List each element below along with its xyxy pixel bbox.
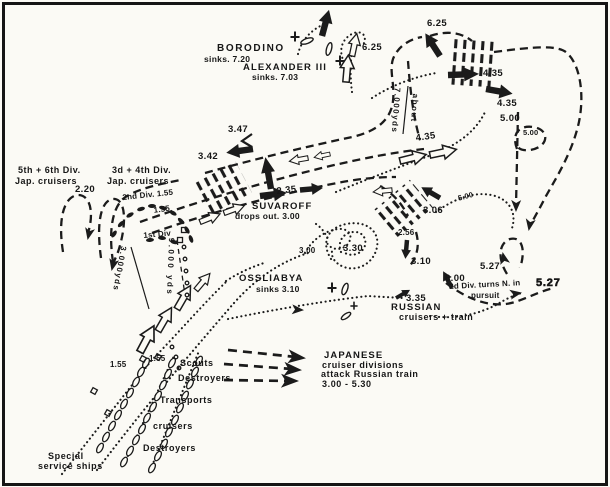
time-3-10: 3.10	[411, 256, 431, 267]
label-ossliabya-note: sinks 3.10	[256, 284, 300, 294]
label-ossliabya-name: OSSLIABYA	[239, 273, 303, 284]
label-div56-line1: 5th + 6th Div.	[18, 165, 81, 175]
label-special-line1: Special	[48, 451, 84, 461]
label-destroyers-upper: Destroyers	[178, 373, 231, 383]
label-transports: Transports	[160, 395, 213, 405]
label-russian-line2: cruisers + train	[399, 312, 473, 322]
time-1-55-col2: 1.55	[149, 354, 165, 363]
time-5-00-a: 5.00	[500, 113, 520, 124]
time-6-25-east: 6.25	[427, 18, 447, 29]
time-6-00: 6.00	[445, 273, 465, 284]
time-3-35: 3.35	[406, 293, 426, 304]
label-div56-line2: Jap. cruisers	[15, 176, 77, 186]
time-4-35-a: 4.35	[483, 68, 503, 79]
time-5-00-loop: 5.00	[523, 128, 538, 137]
time-3-47: 3.47	[228, 124, 248, 135]
label-suvaroff-note: drops out. 3.00	[235, 211, 300, 221]
label-alexander-note: sinks. 7.03	[252, 72, 298, 82]
time-3-00: 3.00	[299, 246, 315, 255]
label-scouts: Scouts	[180, 358, 214, 368]
label-attack-line4: 3.00 - 5.30	[322, 379, 372, 389]
time-4-35-b: 4.35	[497, 98, 517, 109]
time-1-55-col1: 1.55	[110, 360, 126, 369]
time-2-56: 2.56	[398, 228, 414, 237]
label-special-line2: service ships	[38, 461, 103, 471]
turn-chevron-3-47	[242, 134, 252, 147]
label-pursuit-line2: pursuit	[471, 291, 500, 300]
time-3-06: 3.06	[423, 205, 443, 216]
time-3-30: 3.30	[343, 243, 363, 254]
time-6-25-west: 6.25	[362, 42, 382, 53]
time-2-35: 2.35	[276, 184, 297, 197]
formation-block-northeast	[450, 39, 495, 88]
time-3-42: 3.42	[198, 151, 218, 162]
label-borodino-name: BORODINO	[217, 43, 285, 54]
time-2-20: 2.20	[75, 184, 95, 195]
label-div34-line1: 3d + 4th Div.	[112, 165, 171, 175]
label-div34-line2: Jap. cruisers	[107, 176, 169, 186]
time-5-27-bold: 5.27	[536, 277, 561, 289]
label-destroyers-lower: Destroyers	[143, 443, 196, 453]
time-5-27-hairpin: 5.27	[480, 261, 500, 272]
label-attack-line3: attack Russian train	[321, 369, 419, 379]
battle-track-drawing	[0, 0, 610, 487]
label-cruisers: cruisers	[153, 421, 193, 431]
battle-track-chart: BORODINO sinks. 7.20 ALEXANDER III sinks…	[0, 0, 610, 487]
